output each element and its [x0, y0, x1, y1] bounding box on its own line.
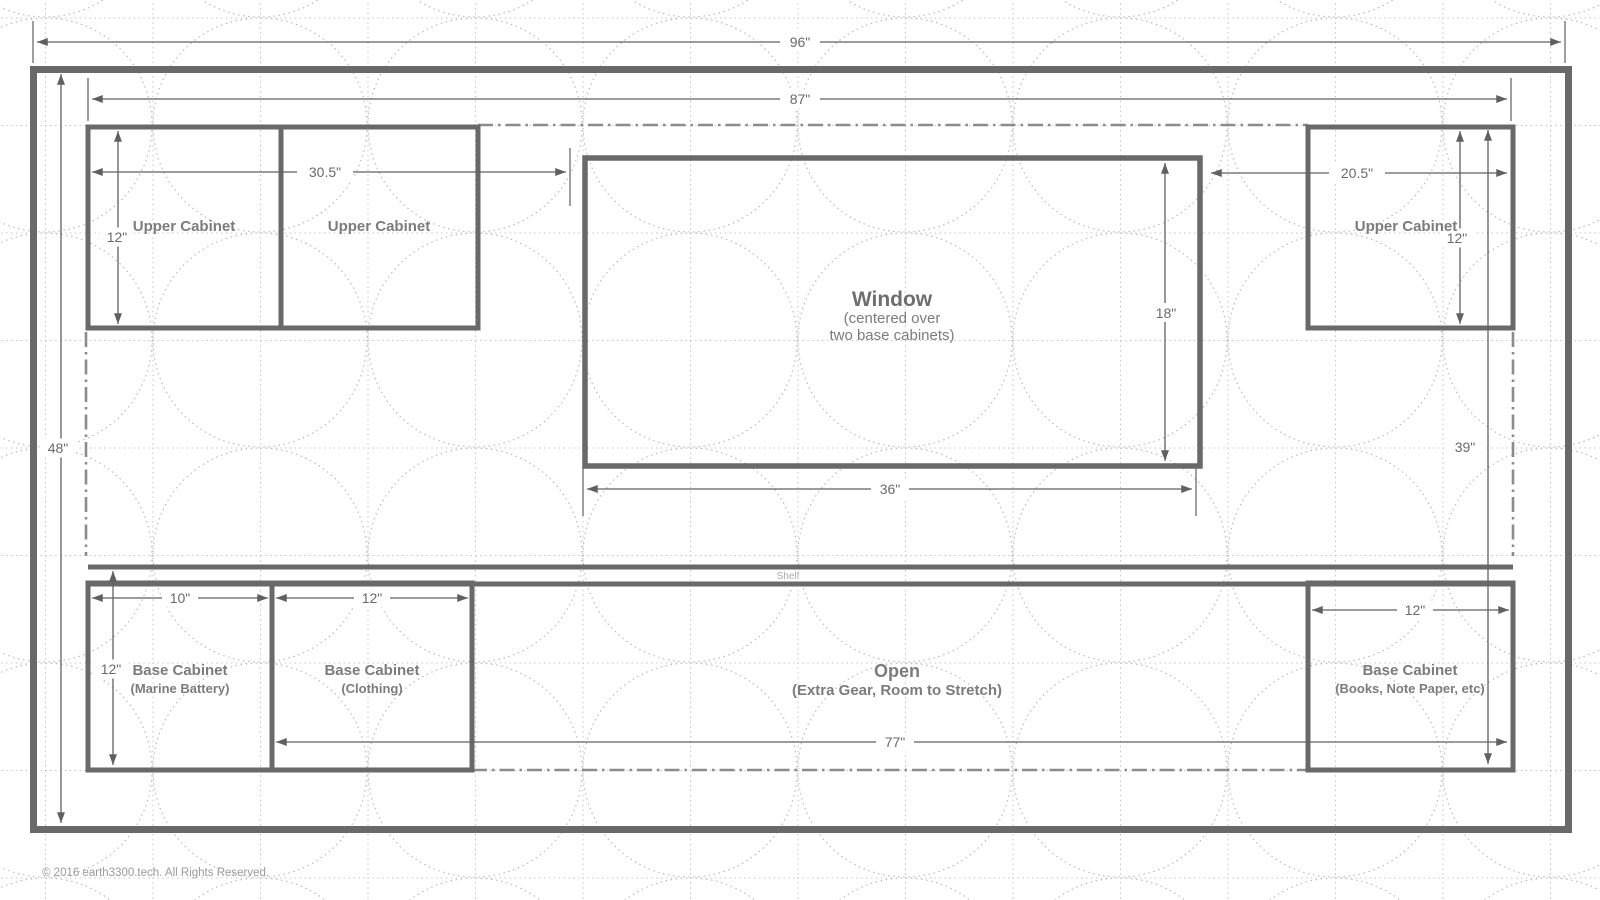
dim-label-wall-height-left: 48" [40, 439, 76, 458]
dim-label-upper-left-pair: 30.5" [297, 163, 353, 182]
dim-window-width-value: 36" [880, 481, 901, 497]
open-area-title: Open [874, 661, 920, 681]
dim-wall-height-right-value: 39" [1455, 439, 1476, 455]
dim-label-upper-left-height: 12" [100, 228, 134, 247]
base-cabinet-1-title: Base Cabinet [132, 662, 227, 679]
dim-label-upper-right-width: 20.5" [1329, 164, 1385, 183]
upper-cabinet-1-label: Upper Cabinet [133, 218, 236, 235]
dim-interior-width-value: 87" [790, 91, 811, 107]
construction-grid-pattern [0, 0, 1600, 900]
window-subtitle-2: two base cabinets) [829, 327, 954, 344]
shelf-label-group: Shelf [766, 570, 810, 583]
dim-upper-left-pair-value: 30.5" [309, 164, 341, 180]
dim-base1-width-value: 10" [170, 590, 191, 606]
open-area-subtitle: (Extra Gear, Room to Stretch) [792, 682, 1002, 699]
dim-label-base2-width: 12" [354, 589, 390, 608]
dim-label-window-height: 18" [1148, 303, 1184, 322]
dim-base1-height-value: 12" [101, 661, 122, 677]
dim-label-overall-width: 96" [780, 33, 820, 52]
drawing-canvas: 96" 87" 30.5" 20.5" 12" 12" 18" 36" 48" … [0, 0, 1600, 900]
cabinet-elevation-drawing: 96" 87" 30.5" 20.5" 12" 12" 18" 36" 48" … [0, 0, 1600, 900]
dim-open-width-value: 77" [885, 734, 906, 750]
dim-overall-width-value: 96" [790, 34, 811, 50]
dim-label-base1-height: 12" [94, 660, 128, 679]
window-subtitle-1: (centered over [844, 310, 941, 327]
dim-base2-width-value: 12" [362, 590, 383, 606]
copyright-notice: © 2016 earth3300.tech. All Rights Reserv… [42, 867, 269, 879]
dim-window-height-value: 18" [1156, 305, 1177, 321]
dim-label-base3-width: 12" [1397, 601, 1433, 620]
dim-label-base1-width: 10" [162, 589, 198, 608]
upper-cabinet-3-label: Upper Cabinet [1355, 218, 1458, 235]
upper-cabinet-2-label: Upper Cabinet [328, 218, 431, 235]
dim-label-interior-width: 87" [780, 90, 820, 109]
dim-label-open-width: 77" [876, 733, 914, 752]
dim-wall-height-left-value: 48" [48, 440, 69, 456]
dim-label-wall-height-right: 39" [1446, 438, 1484, 457]
dim-upper-left-height-value: 12" [107, 229, 128, 245]
window-title: Window [852, 288, 933, 311]
base-cabinet-3-subtitle: (Books, Note Paper, etc) [1335, 681, 1485, 696]
base-cabinet-3-title: Base Cabinet [1362, 662, 1457, 679]
dim-base3-width-value: 12" [1405, 602, 1426, 618]
base-cabinet-2-title: Base Cabinet [324, 662, 419, 679]
base-cabinet-2-subtitle: (Clothing) [341, 681, 402, 696]
dim-label-window-width: 36" [871, 480, 909, 499]
shelf-label: Shelf [777, 571, 800, 582]
dim-upper-right-width-value: 20.5" [1341, 165, 1373, 181]
base-cabinet-1-subtitle: (Marine Battery) [131, 681, 230, 696]
